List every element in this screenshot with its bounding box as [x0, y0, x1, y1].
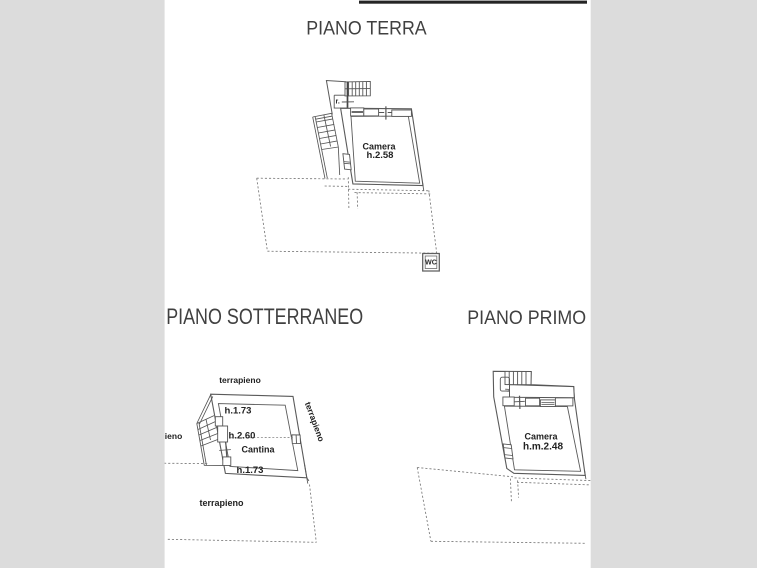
- svg-text:terrapieno: terrapieno: [199, 498, 244, 508]
- svg-text:h.m.2.48: h.m.2.48: [523, 442, 563, 453]
- svg-text:WC: WC: [425, 259, 437, 266]
- svg-text:r.: r.: [336, 99, 340, 106]
- svg-text:h.1.73: h.1.73: [225, 405, 252, 416]
- svg-text:h.1.73: h.1.73: [237, 465, 264, 476]
- svg-text:PIANO SOTTERRANEO: PIANO SOTTERRANEO: [166, 304, 363, 329]
- svg-text:Cantina: Cantina: [241, 444, 275, 454]
- svg-text:Camera: Camera: [524, 432, 558, 442]
- svg-text:h.2.58: h.2.58: [367, 150, 394, 161]
- svg-text:PIANO PRIMO: PIANO PRIMO: [467, 308, 586, 329]
- svg-text:terrapieno: terrapieno: [219, 375, 261, 385]
- svg-text:PIANO TERRA: PIANO TERRA: [306, 18, 427, 39]
- svg-text:h.2.60: h.2.60: [229, 430, 256, 441]
